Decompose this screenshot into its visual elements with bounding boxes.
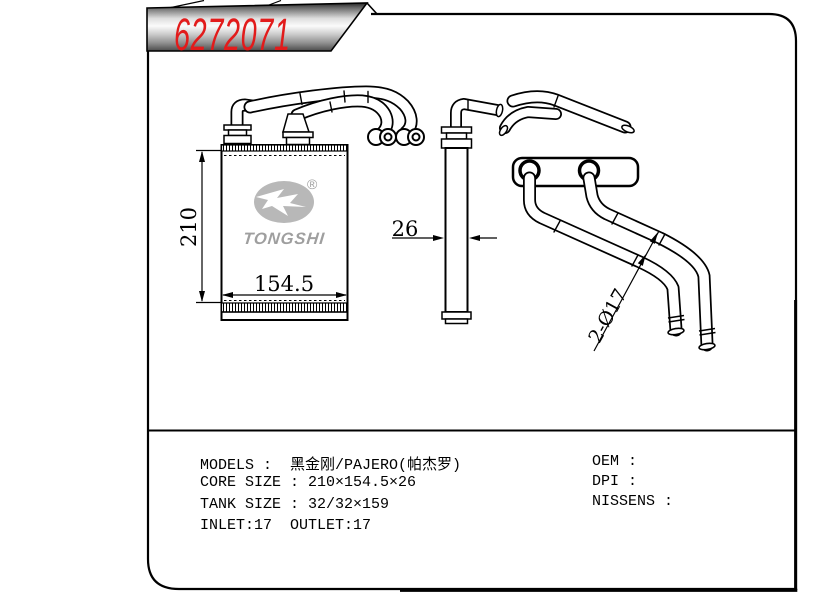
side-view-flanges xyxy=(442,127,472,148)
spec-dpi: DPI : xyxy=(592,473,637,490)
side-view-column xyxy=(446,148,468,312)
technical-drawing-canvas xyxy=(0,0,818,603)
core-bottom-tank-band xyxy=(222,303,348,312)
dimension-height-label: 210 xyxy=(177,199,199,255)
pipe-mouth-rings xyxy=(368,129,424,145)
spec-oem: OEM : xyxy=(592,453,637,470)
side-view-bottom-cap xyxy=(442,312,471,324)
part-number: 6272071 xyxy=(174,9,291,61)
front-view-pipes xyxy=(237,91,411,134)
spec-tank-size: TANK SIZE : 32/32×159 xyxy=(200,496,389,513)
spec-models: MODELS : 黑金刚/PAJERO(帕杰罗) xyxy=(200,453,461,474)
core-top-tank-band xyxy=(222,145,348,151)
banner-frame-connector xyxy=(367,3,377,14)
spec-core-size: CORE SIZE : 210×154.5×26 xyxy=(200,474,416,491)
side-view-elbow xyxy=(456,100,497,127)
registered-trademark-mark: ® xyxy=(307,176,317,192)
dimension-depth-label: 26 xyxy=(384,217,426,241)
spec-nissens: NISSENS : xyxy=(592,493,673,510)
drawing-sheet: 6272071 ® TONGSHI 210 154.5 26 2-Ø17 MOD… xyxy=(0,0,818,603)
dimension-width-label: 154.5 xyxy=(244,272,324,296)
outlet-fitting xyxy=(283,114,313,145)
right-view-top-pipes xyxy=(505,96,625,128)
spec-inlet-outlet: INLET:17 OUTLET:17 xyxy=(200,517,371,534)
tongshi-logo-text: TONGSHI xyxy=(241,230,327,249)
tongshi-logo xyxy=(254,181,314,223)
inlet-fitting xyxy=(224,125,251,144)
